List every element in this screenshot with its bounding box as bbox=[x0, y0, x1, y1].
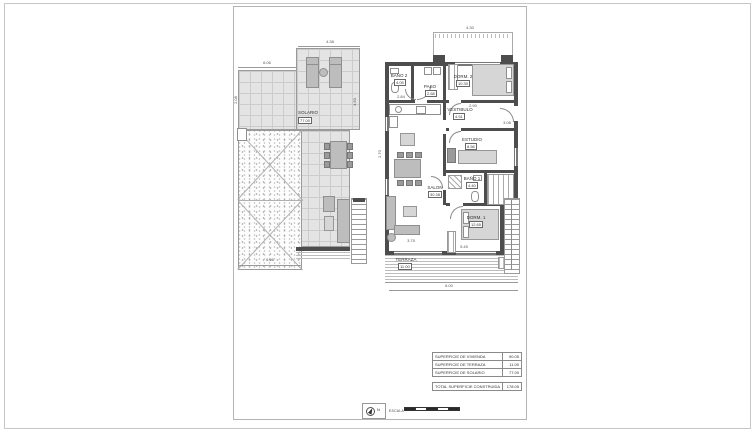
table-row-value: 77.00 bbox=[503, 368, 522, 377]
window bbox=[514, 148, 518, 166]
scale-segments bbox=[404, 407, 459, 425]
area-table: SUPERFICIE DE VIVIENDA 90.05 SUPERFICIE … bbox=[432, 352, 522, 391]
dim-label: 3.75 bbox=[403, 239, 419, 243]
scale-bar: N ESCALA bbox=[362, 402, 472, 422]
room-label-dorm1: DORM. 1 bbox=[464, 215, 488, 220]
area-value-dorm1: 12.65 bbox=[469, 221, 483, 228]
dim-label: 5.45 bbox=[456, 245, 472, 249]
table-total-label: TOTAL SUPERFICIE CONSTRUIDA bbox=[432, 382, 503, 391]
pouf bbox=[387, 233, 396, 242]
table-total-value: 178.05 bbox=[503, 382, 522, 391]
north-indicator: N bbox=[362, 403, 386, 419]
kitchen-island bbox=[400, 133, 415, 146]
desk bbox=[447, 148, 456, 163]
wall-right bbox=[514, 62, 518, 205]
scale-label: ESCALA bbox=[389, 409, 404, 413]
toilet bbox=[471, 191, 479, 202]
area-value-bano2: 4.05 bbox=[394, 79, 406, 86]
cooktop bbox=[416, 106, 426, 114]
pillow bbox=[506, 81, 512, 93]
appliance bbox=[433, 67, 441, 75]
sofa bbox=[394, 225, 420, 235]
area-value-salon: 30.38 bbox=[428, 191, 442, 198]
room-label-paso: PASO bbox=[420, 84, 440, 89]
area-value-vestibulo: 4.51 bbox=[453, 113, 465, 120]
chair bbox=[406, 180, 413, 186]
window bbox=[385, 179, 389, 195]
chair bbox=[397, 180, 404, 186]
partition bbox=[443, 66, 446, 103]
area-value-terraza: 11.00 bbox=[398, 263, 412, 270]
kitchen-sink bbox=[395, 106, 402, 113]
patio-edge-hatch bbox=[435, 34, 511, 38]
chair bbox=[415, 180, 422, 186]
chair bbox=[415, 152, 422, 158]
entrance-door-gap bbox=[514, 106, 518, 121]
area-value-paso: 2.68 bbox=[425, 90, 437, 97]
dim-label: 2.70 bbox=[378, 142, 382, 166]
exterior-stairs bbox=[504, 198, 520, 274]
dim-line bbox=[389, 290, 518, 291]
room-label-terraza: TERRAZA bbox=[394, 257, 418, 262]
room-label-dorm2: DORM. 2 bbox=[453, 74, 473, 79]
area-value-dorm2: 10.30 bbox=[456, 80, 470, 87]
door-gap bbox=[415, 100, 427, 103]
dim-label: 2.84 bbox=[394, 95, 408, 99]
dim-label: 3.08 bbox=[500, 121, 514, 125]
fridge bbox=[389, 116, 398, 128]
floor-plan: BAÑO 2 4.05 PASO 2.68 DORM. 2 10.30 VEST… bbox=[0, 0, 756, 432]
dim-label: 2.90 bbox=[466, 104, 480, 108]
table-total-row: TOTAL SUPERFICIE CONSTRUIDA 178.05 bbox=[432, 382, 522, 391]
room-label-bano1: BAÑO 1 bbox=[461, 176, 483, 181]
room-label-estudio: ESTUDIO bbox=[459, 137, 485, 142]
table-row: SUPERFICIE DE SOLARIO 77.00 bbox=[432, 368, 522, 377]
chair bbox=[397, 152, 404, 158]
north-letter: N bbox=[377, 407, 380, 412]
stair-direction-line bbox=[511, 200, 512, 270]
room-label-salon: SALON bbox=[424, 185, 446, 190]
shower bbox=[448, 175, 462, 189]
door-gap bbox=[443, 120, 446, 134]
table-row-label: SUPERFICIE DE SOLARIO bbox=[432, 368, 503, 377]
dining-table bbox=[394, 159, 421, 178]
daybed bbox=[458, 150, 497, 164]
drawing-sheet: SOLARIO 77.00 4.38 6.06 6.06 4.50 2.08 bbox=[0, 0, 756, 432]
wardrobe bbox=[447, 231, 456, 253]
pillow bbox=[506, 67, 512, 79]
room-label-bano2: BAÑO 2 bbox=[388, 73, 410, 78]
scale-segment bbox=[448, 407, 460, 411]
partition bbox=[446, 170, 518, 173]
area-value-estudio: 8.56 bbox=[465, 143, 477, 150]
appliance bbox=[424, 67, 432, 75]
area-value-bano1: 4.40 bbox=[466, 182, 478, 189]
dim-label: 4.30 bbox=[462, 26, 478, 30]
dim-label: 6.00 bbox=[440, 284, 458, 288]
chair bbox=[406, 152, 413, 158]
coffee-table bbox=[403, 206, 417, 217]
